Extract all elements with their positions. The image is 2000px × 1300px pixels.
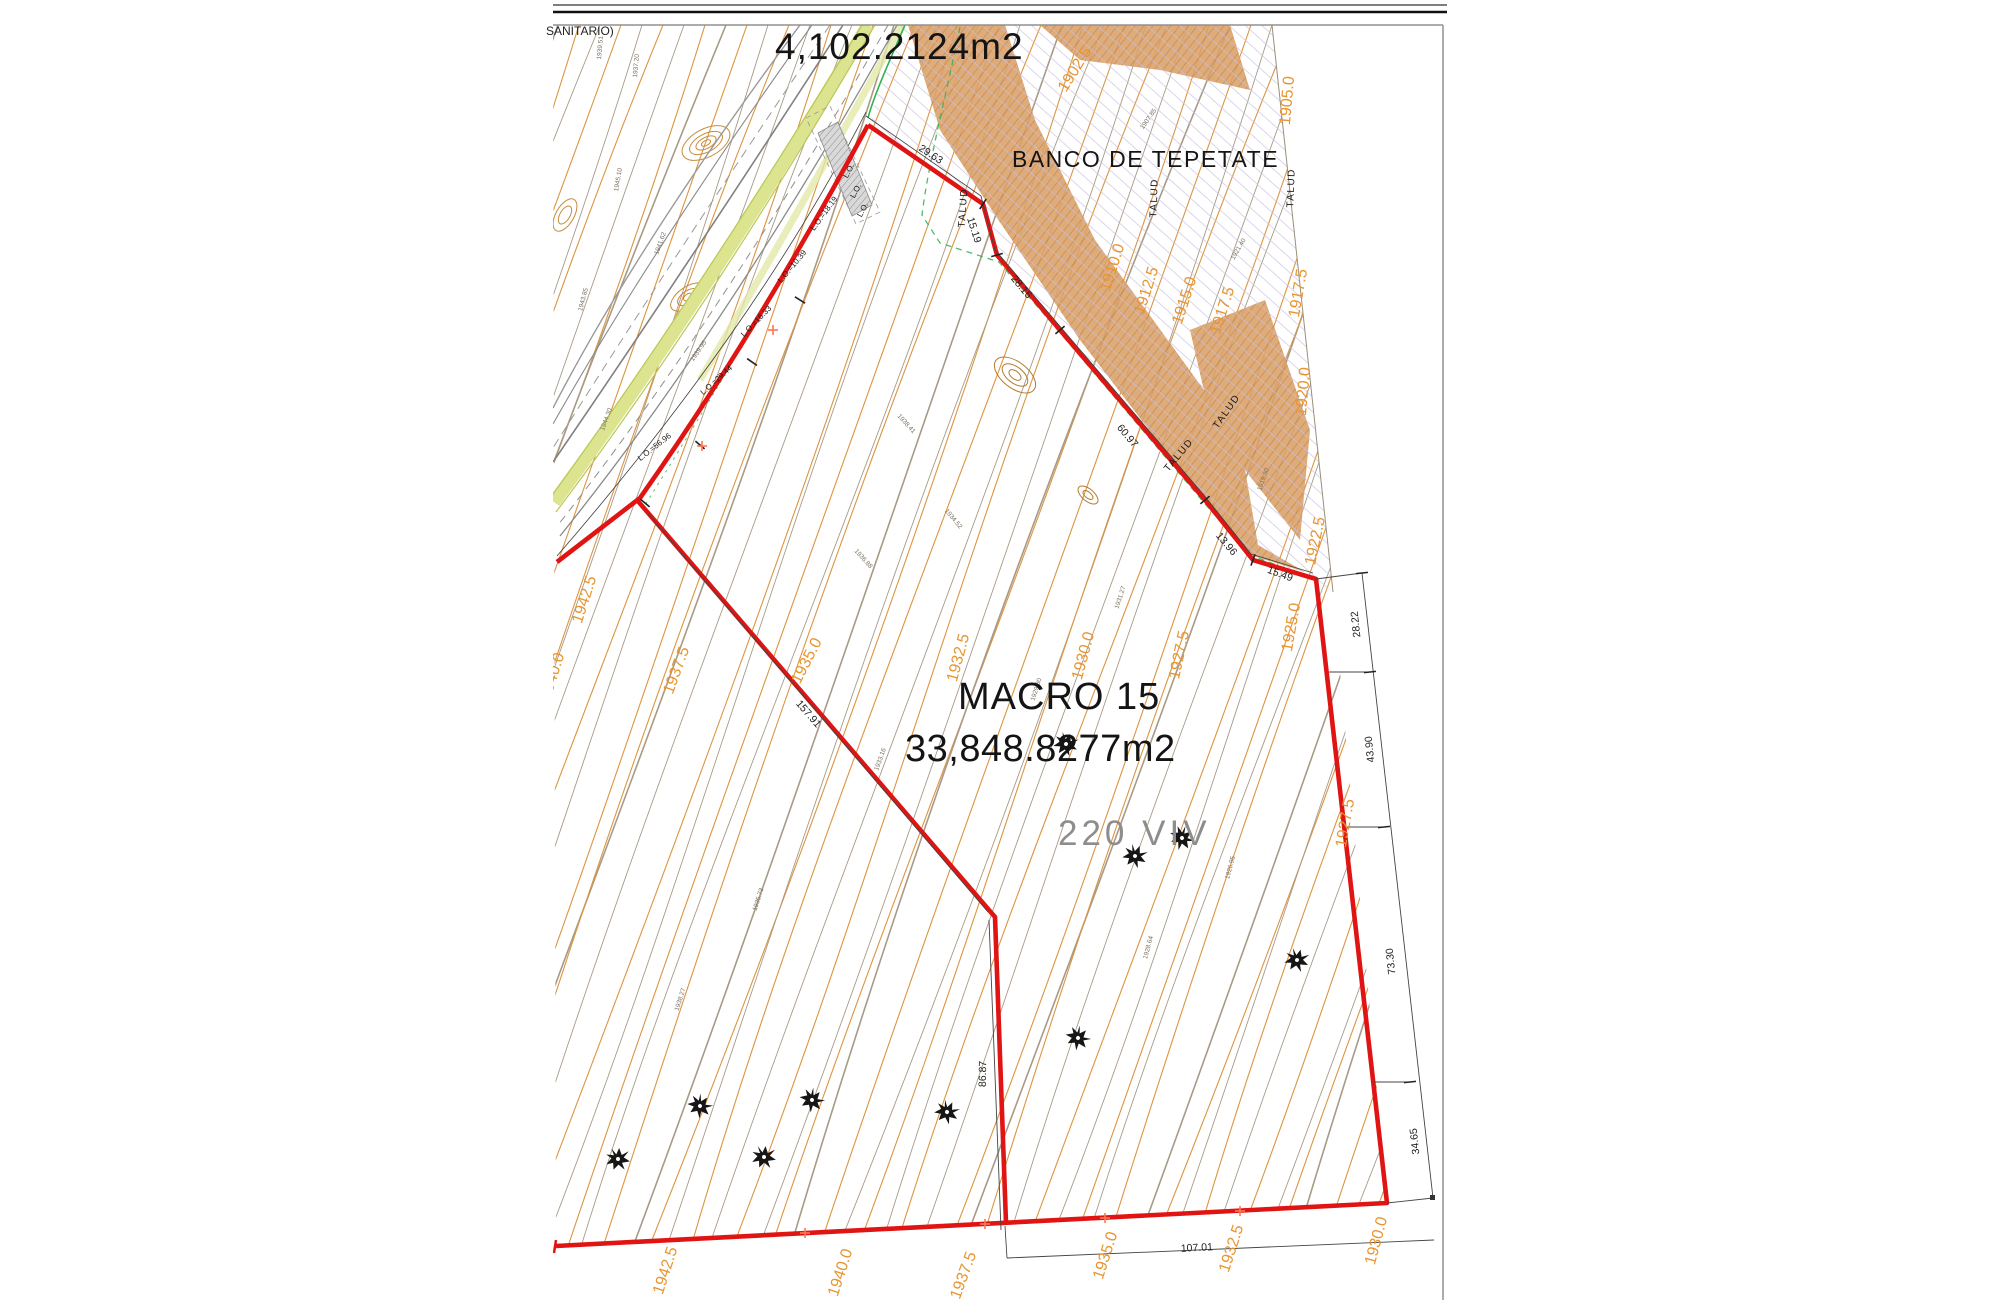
contour-elevation-label: 1937.5 [660,644,693,696]
minor-elevation-label: 1941.62 [653,231,668,256]
contour-line [271,25,726,1300]
minor-elevation-label: 1936.88 [853,548,874,570]
viviendas-count-label: 220 VIV [1058,814,1211,854]
minor-elevation-label: 1928.64 [1142,935,1155,960]
minor-elevation-label: 1939.51 [596,35,605,59]
dimension-label: 28.22 [1349,610,1364,638]
contour-elevation-label: 1935.0 [1090,1230,1121,1282]
banco-hatch-area [869,25,1333,592]
contour-line [1432,25,1881,1300]
dimension-label: 34.65 [1408,1127,1423,1155]
minor-elevation-label: 1939.95 [689,339,708,363]
minor-elevation-label: 1938.27 [674,987,688,1012]
contour-elevation-label: 1937.5 [947,1249,980,1300]
contour-line [145,25,600,1300]
dimension-label: 86.87 [977,1061,989,1088]
minor-elevation-label: 1937.20 [632,53,641,77]
contour-elevation-label: 1930.0 [1069,630,1098,682]
minor-elevation-label: 1931.27 [1114,585,1128,610]
parcel-area-top-label: 4,102.2124m2 [775,26,1024,68]
tree-symbol [1062,1022,1095,1055]
contour-elevation-label: 1925.0 [1279,602,1304,653]
contour-line [1243,25,1692,1300]
contour-line [1342,25,1797,1300]
contour-line [1369,25,1818,1300]
minor-elevation-label: 1938.41 [896,413,917,435]
minor-elevation-label: 1934.52 [943,508,964,531]
site-plan-map: 1939.511937.201945.101941.621943.851944.… [0,0,2000,1300]
macro-15-title: MACRO 15 [958,676,1160,719]
contour-elevation-label: 1935.0 [788,635,825,686]
contour-line [376,25,831,1300]
minor-elevation-label: 1943.85 [577,287,590,312]
tree-symbol [1282,946,1312,975]
contour-line [1321,25,1776,1300]
contour-elevation-label: 1927.5 [1333,798,1358,849]
minor-elevation-label: 1926.95 [1224,855,1237,880]
contour-line [1306,25,1755,1300]
site-plan-page: 1939.511937.201945.101941.621943.851944.… [0,0,2000,1300]
contour-line [124,25,579,1300]
tree-symbol [796,1084,829,1117]
contour-elevation-label: 1942.5 [569,574,600,626]
dimension-label: 15.19 [964,216,984,245]
dimension-tick [1356,572,1368,573]
banco-de-tepetate-label: BANCO DE TEPETATE [1012,146,1279,173]
contour-elevation-label: 1942.5 [650,1245,681,1297]
contour-line [187,25,642,1300]
dimension-label: 43.90 [1363,735,1378,763]
contour-elevation-label: 1927.5 [1166,629,1193,681]
macro-15-area-label: 33,848.8277m2 [905,728,1176,771]
station-marks [697,325,1245,1238]
tree-symbols [605,729,1312,1171]
minor-elevation-label: 1945.10 [613,167,624,192]
dimension-label: 60.97 [1114,422,1140,450]
dimension-label: 107.01 [1180,1241,1213,1255]
contour-elevation-label: 1940.0 [825,1247,856,1299]
dimension-label: 73.30 [1384,947,1399,975]
talud-label: TALUD [1285,168,1297,208]
contour-line [1384,25,1839,1300]
sanitario-label: SANITARIO) [546,24,614,38]
talud-label: TALUD [1148,178,1160,218]
dimension-tick [747,359,757,366]
contour-elevation-label: 1930.0 [1362,1215,1391,1267]
contour-line [235,25,684,1300]
contour-line [1405,25,1860,1300]
contour-elevation-label: 1905.0 [1277,75,1298,125]
dimension-tick [695,441,704,449]
contour-line [250,25,705,1300]
minor-elevation-label: 1935.73 [752,887,766,912]
contour-line [208,25,663,1300]
contour-line [1279,25,1734,1300]
road [553,25,902,556]
contour-line [109,25,558,1300]
lo-bearing-label: L.O.=10.39 [776,248,809,285]
